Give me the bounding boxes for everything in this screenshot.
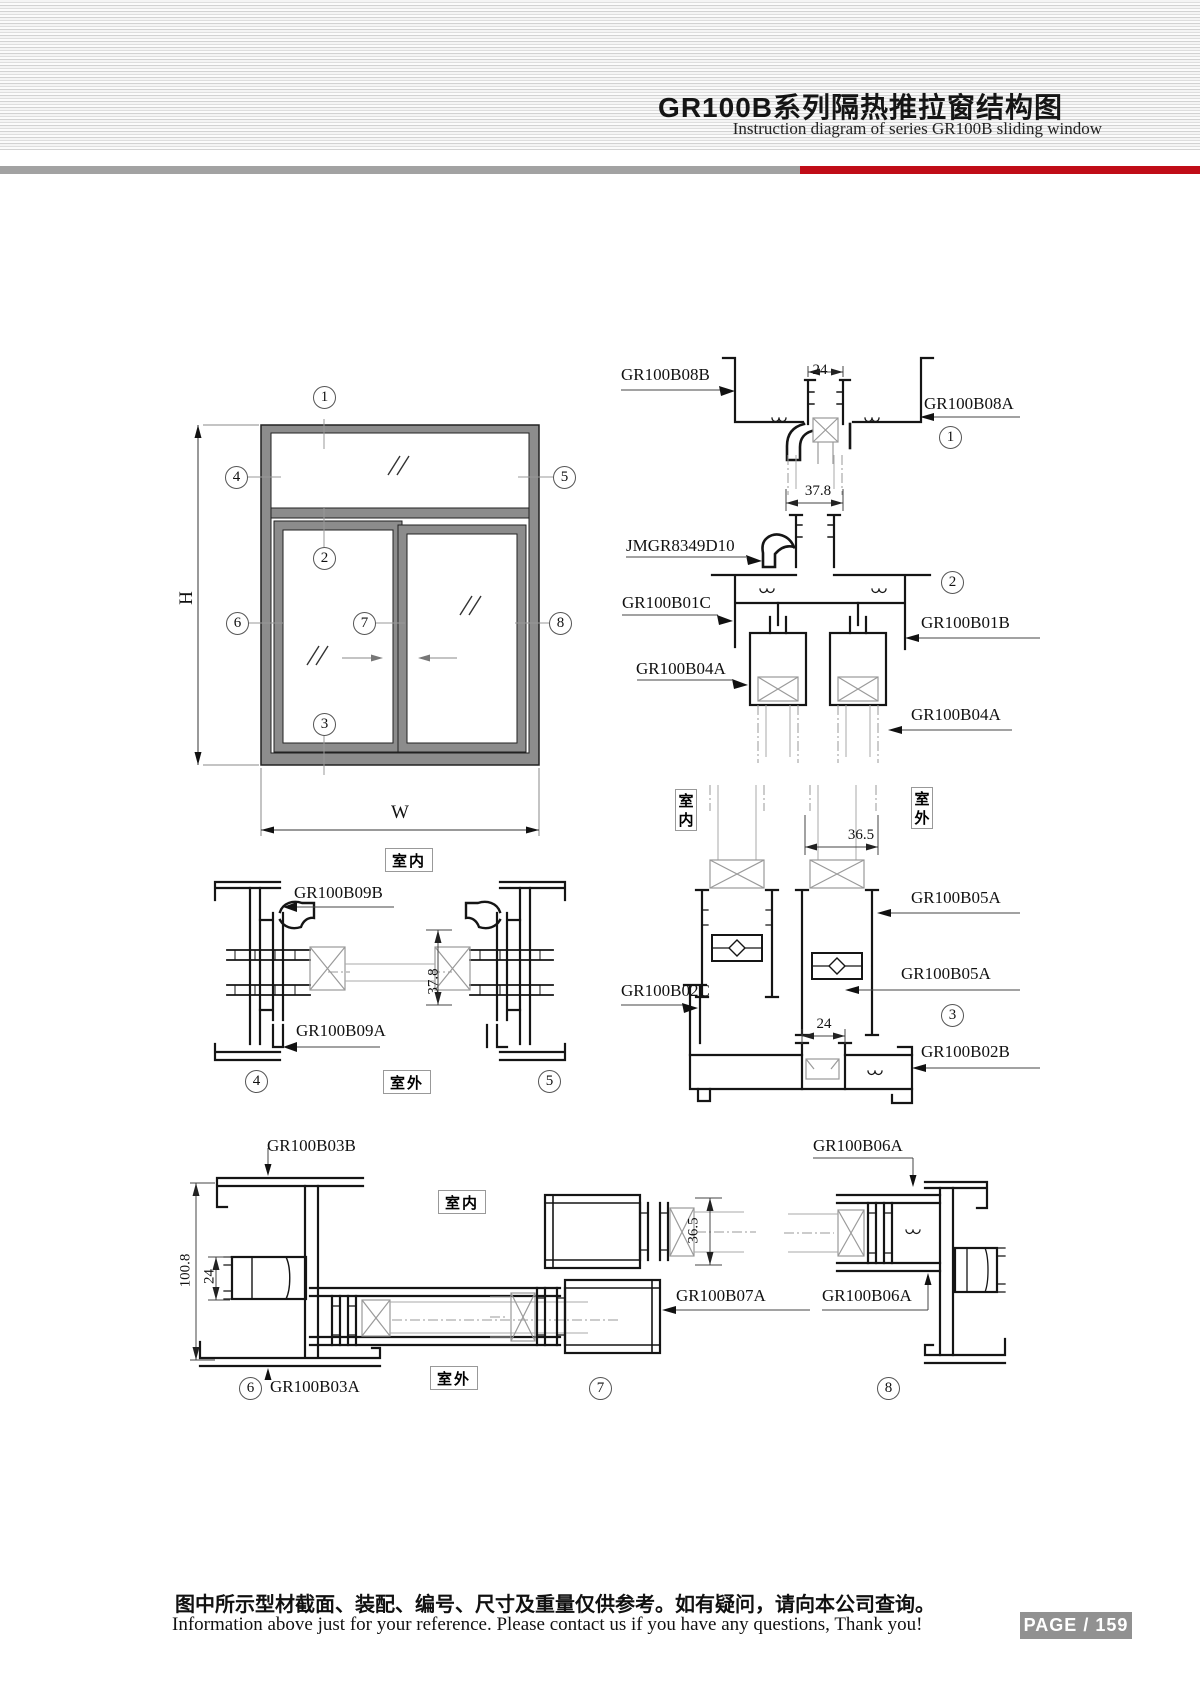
room-label-indoor: 室内 xyxy=(385,848,433,872)
elevation-callout-4: 4 xyxy=(225,466,248,489)
dim-height: H xyxy=(176,588,198,608)
section-callout-7: 7 xyxy=(589,1377,612,1400)
part-label: GR100B02B xyxy=(921,1042,1010,1062)
section-callout-6: 6 xyxy=(239,1377,262,1400)
elevation-callout-7: 7 xyxy=(353,612,376,635)
part-label: GR100B08A xyxy=(924,394,1014,414)
room-label-outdoor: 室外 xyxy=(911,787,933,829)
part-label: GR100B09B xyxy=(294,883,383,903)
part-label: GR100B06A xyxy=(813,1136,903,1156)
part-label: GR100B05A xyxy=(901,964,991,984)
part-label: GR100B03B xyxy=(267,1136,356,1156)
section-callout-5: 5 xyxy=(538,1070,561,1093)
part-label: GR100B08B xyxy=(621,365,710,385)
part-label: GR100B06A xyxy=(822,1286,912,1306)
elevation-callout-5: 5 xyxy=(553,466,576,489)
part-label: GR100B01B xyxy=(921,613,1010,633)
dim-label: 100.8 xyxy=(178,1244,195,1298)
section-8-drawing xyxy=(780,1130,1050,1400)
part-label: GR100B04A xyxy=(636,659,726,679)
room-label-outdoor: 室外 xyxy=(430,1366,478,1390)
room-label-indoor: 室内 xyxy=(675,789,697,831)
elevation-callout-2: 2 xyxy=(313,547,336,570)
dim-label: 37.8 xyxy=(796,483,840,500)
section-callout-2: 2 xyxy=(941,571,964,594)
room-label-indoor: 室内 xyxy=(438,1190,486,1214)
page-number-badge: PAGE / 159 xyxy=(1020,1612,1132,1639)
section-callout-1: 1 xyxy=(939,426,962,449)
part-label: GR100B09A xyxy=(296,1021,386,1041)
elevation-callout-8: 8 xyxy=(549,612,572,635)
part-label: GR100B02C xyxy=(621,981,710,1001)
part-label: GR100B03A xyxy=(270,1377,360,1397)
elevation-callout-6: 6 xyxy=(226,612,249,635)
dim-label: 36.5 xyxy=(686,1209,703,1253)
dim-label: 36.5 xyxy=(841,827,881,844)
dim-label: 37.8 xyxy=(426,960,443,1004)
part-label: JMGR8349D10 xyxy=(626,536,735,556)
section-callout-4: 4 xyxy=(245,1070,268,1093)
part-label: GR100B01C xyxy=(622,593,711,613)
room-label-outdoor: 室外 xyxy=(383,1070,431,1094)
dim-label: 24 xyxy=(202,1263,219,1291)
part-label: GR100B05A xyxy=(911,888,1001,908)
part-label: GR100B04A xyxy=(911,705,1001,725)
footer-note-cn: 图中所示型材截面、装配、编号、尺寸及重量仅供参考。如有疑问，请向本公司查询。 xyxy=(175,1588,935,1617)
elevation-callout-1: 1 xyxy=(313,386,336,409)
dim-label: 24 xyxy=(806,1016,842,1033)
section-callout-3: 3 xyxy=(941,1004,964,1027)
dim-label: 24 xyxy=(802,362,838,379)
header-divider-gray xyxy=(0,166,800,174)
elevation-callout-3: 3 xyxy=(313,713,336,736)
footer-note-en: Information above just for your referenc… xyxy=(172,1614,922,1636)
dim-width: W xyxy=(385,802,415,824)
page-subtitle: Instruction diagram of series GR100B sli… xyxy=(733,119,1102,139)
section-4-5-drawing xyxy=(180,860,600,1095)
header-divider-red xyxy=(800,166,1200,174)
section-callout-8: 8 xyxy=(877,1377,900,1400)
part-label: GR100B07A xyxy=(676,1286,766,1306)
catalog-page: GR100B系列隔热推拉窗结构图 Instruction diagram of … xyxy=(0,0,1200,1697)
